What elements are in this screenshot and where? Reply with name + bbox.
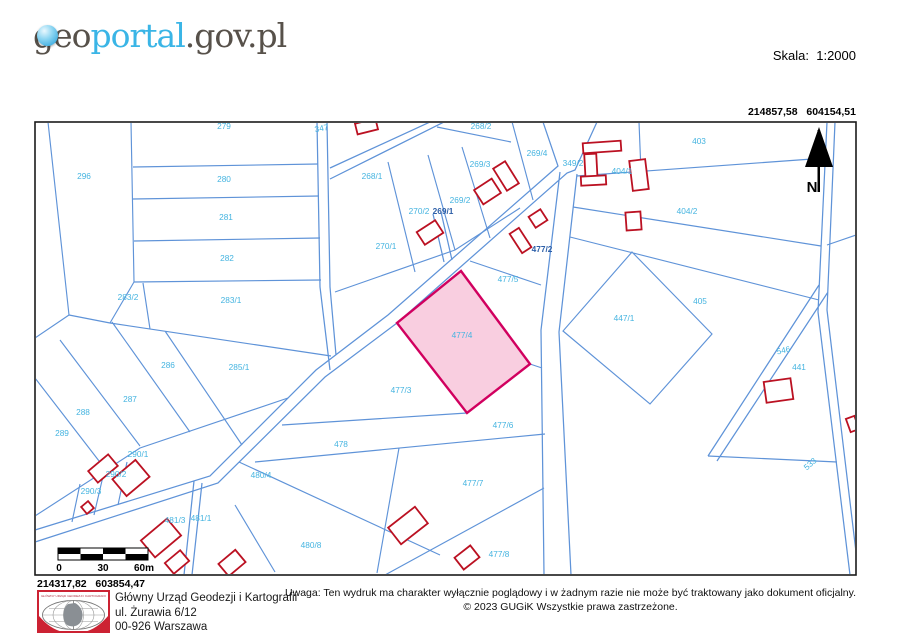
- parcel-label-296: 296: [77, 171, 91, 181]
- parcel-label-285/1: 285/1: [229, 362, 250, 372]
- parcel-label-269/3: 269/3: [470, 159, 491, 169]
- scalebar-tick-0: 0: [56, 563, 62, 574]
- parcel-label-477/7: 477/7: [463, 478, 484, 488]
- coordinate-bottom-left: 214317,82 603854,47: [37, 578, 145, 590]
- parcel-label-268/1: 268/1: [362, 171, 383, 181]
- gugik-logo-caption: GŁÓWNY URZĄD GEODEZJI I KARTOGRAFII: [41, 593, 106, 598]
- parcel-label-403: 403: [692, 136, 706, 146]
- parcel-label-270/1: 270/1: [376, 241, 397, 251]
- scalebar-tick-30: 30: [97, 563, 109, 574]
- org-address-block: Główny Urząd Geodezji i Kartografii ul. …: [115, 591, 297, 635]
- geoportal-print-page: { "header": { "logo": {"geo": "geo", "po…: [0, 0, 900, 636]
- north-label: N: [807, 179, 818, 196]
- parcel-label-269/2: 269/2: [450, 195, 471, 205]
- parcel-label-404/1: 404/1: [612, 166, 633, 176]
- copyright-text: © 2023 GUGiK Wszystkie prawa zastrzeżone…: [285, 600, 856, 614]
- parcel-label-287: 287: [123, 394, 137, 404]
- disclaimer-text: Uwaga: Ten wydruk ma charakter wyłącznie…: [285, 586, 856, 600]
- parcel-label-404/2: 404/2: [677, 206, 698, 216]
- parcel-label-349/2: 349/2: [563, 158, 584, 168]
- parcel-label-477/6: 477/6: [493, 420, 514, 430]
- parcel-label-288: 288: [76, 407, 90, 417]
- parcel-label-290/1: 290/1: [128, 449, 149, 459]
- gugik-logo: GŁÓWNY URZĄD GEODEZJI I KARTOGRAFII: [37, 590, 110, 633]
- parcel-label-477/4: 477/4: [452, 330, 473, 340]
- parcel-label-269/1: 269/1: [433, 206, 454, 216]
- parcel-label-480/4: 480/4: [251, 470, 272, 480]
- parcel-label-270/2: 270/2: [409, 206, 430, 216]
- map-canvas: 279347268/2296280268/1269/4349/2269/3404…: [0, 0, 900, 636]
- disclaimer-block: Uwaga: Ten wydruk ma charakter wyłącznie…: [285, 586, 856, 614]
- parcel-label-441: 441: [792, 362, 806, 372]
- parcel-label-286: 286: [161, 360, 175, 370]
- parcel-label-477/2: 477/2: [532, 244, 553, 254]
- org-street: ul. Żurawia 6/12: [115, 606, 297, 621]
- parcel-label-481/3: 481/3: [165, 515, 186, 525]
- parcel-label-290/2: 290/2: [106, 469, 127, 479]
- parcel-label-282: 282: [220, 253, 234, 263]
- parcel-label-477/3: 477/3: [391, 385, 412, 395]
- parcel-label-290/3: 290/3: [81, 486, 102, 496]
- parcel-label-478: 478: [334, 439, 348, 449]
- parcel-label-269/4: 269/4: [527, 148, 548, 158]
- parcel-label-480/8: 480/8: [301, 540, 322, 550]
- parcel-label-280: 280: [217, 174, 231, 184]
- org-name: Główny Urząd Geodezji i Kartografii: [115, 591, 297, 606]
- parcel-label-283/2: 283/2: [118, 292, 139, 302]
- scalebar-tick-60m: 60m: [134, 563, 154, 574]
- org-city: 00-926 Warszawa: [115, 620, 297, 635]
- parcel-label-447/1: 447/1: [614, 313, 635, 323]
- parcel-label-481/1: 481/1: [191, 513, 212, 523]
- parcel-label-281: 281: [219, 212, 233, 222]
- parcel-label-283/1: 283/1: [221, 295, 242, 305]
- parcel-label-477/8: 477/8: [489, 549, 510, 559]
- parcel-label-289: 289: [55, 428, 69, 438]
- parcel-label-405: 405: [693, 296, 707, 306]
- parcel-label-477/5: 477/5: [498, 274, 519, 284]
